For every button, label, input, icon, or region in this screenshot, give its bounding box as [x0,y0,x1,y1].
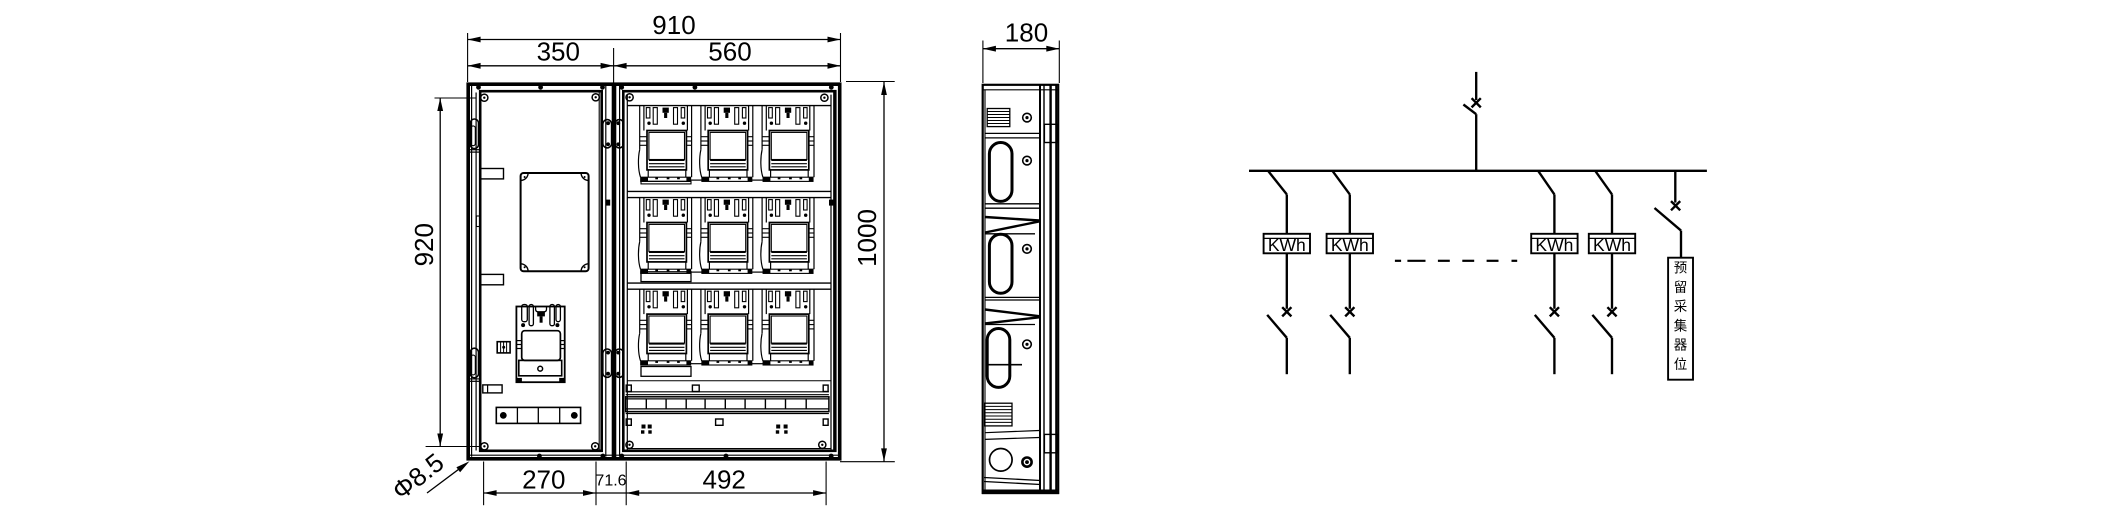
svg-text:预: 预 [1674,261,1688,276]
svg-text:器: 器 [1674,338,1688,353]
svg-text:KWh: KWh [1331,235,1369,255]
svg-text:560: 560 [708,37,751,67]
svg-text:KWh: KWh [1535,235,1573,255]
svg-text:350: 350 [537,37,580,67]
svg-text:KWh: KWh [1268,235,1306,255]
svg-text:1000: 1000 [852,209,882,267]
svg-text:910: 910 [652,10,695,40]
svg-text:180: 180 [1005,18,1048,48]
svg-text:采: 采 [1674,299,1688,314]
svg-text:KWh: KWh [1593,235,1631,255]
svg-text:集: 集 [1674,318,1688,333]
svg-text:920: 920 [409,223,439,266]
svg-text:71.6: 71.6 [595,472,626,489]
svg-text:492: 492 [703,464,746,494]
svg-text:270: 270 [522,464,565,494]
svg-text:留: 留 [1674,280,1688,295]
svg-text:位: 位 [1674,357,1688,372]
